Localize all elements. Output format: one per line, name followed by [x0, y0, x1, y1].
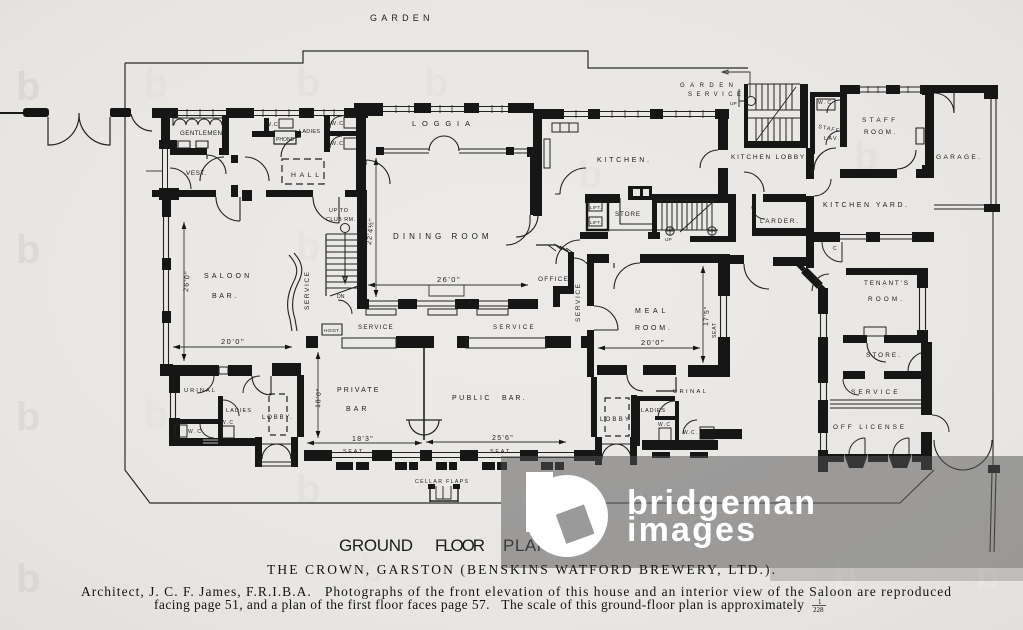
- svg-text:facing page 51, and a plan of: facing page 51, and a plan of the first …: [154, 597, 804, 612]
- svg-text:W.C: W.C: [221, 420, 233, 426]
- svg-text:W.C.: W.C.: [683, 430, 697, 436]
- svg-text:KITCHEN.: KITCHEN.: [597, 157, 649, 164]
- svg-text:SEAT: SEAT: [712, 322, 718, 338]
- svg-text:SERVICE: SERVICE: [575, 282, 582, 322]
- svg-text:b: b: [144, 393, 168, 437]
- svg-text:UP: UP: [730, 101, 737, 107]
- svg-text:W.C: W.C: [188, 429, 201, 435]
- svg-text:b: b: [16, 557, 40, 601]
- svg-text:UP: UP: [665, 237, 672, 243]
- svg-text:b: b: [16, 228, 40, 272]
- svg-text:DN: DN: [337, 294, 345, 300]
- svg-text:b: b: [16, 395, 40, 439]
- svg-text:18'3": 18'3": [352, 436, 374, 443]
- svg-text:SERVICE: SERVICE: [358, 324, 394, 331]
- svg-text:b: b: [144, 63, 168, 107]
- svg-text:SERVICE: SERVICE: [493, 324, 535, 331]
- svg-text:LIFT.: LIFT.: [590, 205, 601, 210]
- svg-text:GARDEN: GARDEN: [370, 13, 434, 23]
- svg-text:PUBLIC: PUBLIC: [452, 395, 492, 402]
- svg-text:1: 1: [818, 598, 822, 606]
- svg-text:OFFICE.: OFFICE.: [538, 276, 571, 283]
- svg-text:SALOON: SALOON: [204, 273, 252, 280]
- svg-text:KITCHEN YARD.: KITCHEN YARD.: [823, 202, 907, 209]
- svg-text:20'0": 20'0": [221, 337, 245, 346]
- svg-text:GARAGE.: GARAGE.: [936, 154, 980, 161]
- svg-text:PHONE: PHONE: [276, 137, 295, 143]
- svg-text:THE CROWN, GARSTON (BENSKINS W: THE CROWN, GARSTON (BENSKINS WATFORD BRE…: [267, 562, 775, 577]
- svg-text:DINING ROOM: DINING ROOM: [393, 232, 492, 241]
- svg-text:CLUB RM.: CLUB RM.: [326, 217, 355, 223]
- svg-text:b: b: [296, 61, 320, 105]
- svg-text:W.C: W.C: [331, 141, 343, 147]
- svg-text:C: C: [833, 246, 837, 252]
- svg-text:W.C: W.C: [331, 121, 343, 127]
- svg-text:BAR.: BAR.: [212, 293, 239, 300]
- svg-text:b: b: [16, 65, 40, 109]
- svg-text:TENANT'S: TENANT'S: [864, 280, 908, 287]
- svg-text:18'0": 18'0": [315, 388, 323, 408]
- svg-text:BAR: BAR: [346, 406, 369, 413]
- svg-text:20'0": 20'0": [641, 338, 665, 347]
- svg-text:HOIST.: HOIST.: [324, 328, 340, 333]
- svg-text:SERVICE: SERVICE: [304, 270, 311, 310]
- svg-text:CELLAR FLAPS: CELLAR FLAPS: [415, 479, 469, 485]
- svg-text:b: b: [424, 61, 448, 105]
- svg-text:UP TO: UP TO: [329, 208, 348, 214]
- svg-text:FLOOR: FLOOR: [435, 536, 485, 555]
- svg-text:228: 228: [813, 606, 824, 614]
- svg-text:W.C.: W.C.: [266, 122, 280, 128]
- svg-text:LARDER.: LARDER.: [760, 218, 798, 225]
- svg-text:LADIES: LADIES: [299, 129, 320, 135]
- svg-text:LOGGIA: LOGGIA: [412, 119, 474, 128]
- svg-text:ROOM.: ROOM.: [635, 325, 672, 332]
- svg-text:PRIVATE: PRIVATE: [337, 387, 381, 394]
- svg-text:LOBBY.: LOBBY.: [262, 414, 292, 421]
- svg-text:b: b: [296, 468, 320, 512]
- svg-text:26'0": 26'0": [437, 275, 461, 284]
- svg-text:17'5": 17'5": [703, 306, 711, 326]
- svg-text:GENTLEMEN: GENTLEMEN: [180, 130, 222, 137]
- svg-text:W.C: W.C: [658, 422, 670, 428]
- svg-text:25'6": 25'6": [492, 435, 514, 442]
- svg-text:GROUND: GROUND: [339, 536, 413, 555]
- svg-text:MEAL: MEAL: [635, 308, 668, 315]
- svg-text:STORE: STORE: [615, 211, 640, 218]
- svg-text:LADIES: LADIES: [641, 408, 665, 414]
- svg-text:KITCHEN LOBBY.: KITCHEN LOBBY.: [731, 154, 807, 161]
- svg-text:BAR.: BAR.: [502, 395, 527, 402]
- svg-text:VEST.: VEST.: [186, 170, 206, 177]
- svg-text:LIFT.: LIFT.: [590, 220, 601, 225]
